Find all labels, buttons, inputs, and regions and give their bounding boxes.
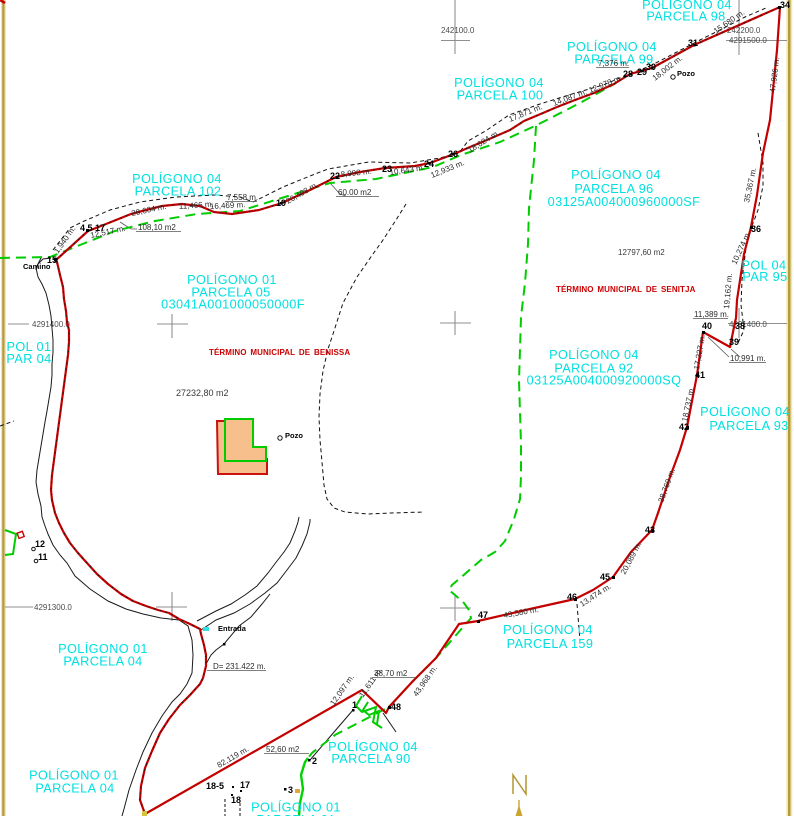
svg-text:3: 3 <box>288 785 293 795</box>
svg-text:18-5: 18-5 <box>206 781 224 791</box>
svg-text:PAR 95: PAR 95 <box>742 270 787 284</box>
svg-text:45: 45 <box>600 572 610 582</box>
svg-text:1: 1 <box>352 700 357 710</box>
svg-text:PARCELA 102: PARCELA 102 <box>135 185 222 199</box>
svg-text:12797,60 m2: 12797,60 m2 <box>618 248 665 257</box>
svg-text:38,70 m2: 38,70 m2 <box>374 669 408 678</box>
svg-text:PARCELA 90: PARCELA 90 <box>331 752 410 766</box>
svg-text:D= 231.422 m.: D= 231.422 m. <box>213 662 266 671</box>
svg-text:03041A001000050000F: 03041A001000050000F <box>161 298 305 312</box>
svg-text:39: 39 <box>729 337 739 347</box>
svg-text:POLÍGONO 04: POLÍGONO 04 <box>700 404 790 419</box>
svg-text:7,376 m.: 7,376 m. <box>598 59 629 68</box>
svg-text:4291300.0: 4291300.0 <box>34 603 72 612</box>
svg-text:4 5 17: 4 5 17 <box>80 223 105 233</box>
svg-text:Entrada: Entrada <box>218 624 247 633</box>
svg-text:PARCELA 04: PARCELA 04 <box>63 655 142 669</box>
svg-text:60.00 m2: 60.00 m2 <box>338 188 372 197</box>
svg-text:PARCELA 100: PARCELA 100 <box>457 89 544 103</box>
svg-text:34: 34 <box>780 0 790 10</box>
svg-text:TÉRMINO MUNICIPAL DE SENITJ: TÉRMINO MUNICIPAL DE SENITJA <box>556 285 696 294</box>
svg-text:12: 12 <box>35 539 45 549</box>
svg-text:11: 11 <box>38 552 48 562</box>
svg-text:PARCELA 93: PARCELA 93 <box>709 419 788 433</box>
svg-text:PARCELA 98: PARCELA 98 <box>646 10 725 24</box>
svg-text:POLÍGONO 01: POLÍGONO 01 <box>29 768 119 783</box>
svg-text:PARCELA 96: PARCELA 96 <box>574 182 653 196</box>
svg-text:11,389 m.: 11,389 m. <box>694 310 729 319</box>
svg-text:17: 17 <box>240 780 250 790</box>
svg-text:7,558 m.: 7,558 m. <box>227 193 258 202</box>
svg-text:47: 47 <box>478 610 488 620</box>
svg-text:03125A004000920000SQ: 03125A004000920000SQ <box>527 374 682 388</box>
svg-text:POLÍGONO 04: POLÍGONO 04 <box>503 622 593 637</box>
svg-text:108,10 m2: 108,10 m2 <box>138 223 176 232</box>
svg-text:10,991 m.: 10,991 m. <box>730 354 766 363</box>
svg-text:4291500.0: 4291500.0 <box>729 36 767 45</box>
svg-text:PARCELA 159: PARCELA 159 <box>507 637 594 651</box>
svg-text:38: 38 <box>735 321 745 331</box>
svg-text:27232,80 m2: 27232,80 m2 <box>176 388 229 398</box>
svg-text:22: 22 <box>330 171 340 181</box>
svg-text:POLÍGONO 04: POLÍGONO 04 <box>571 167 661 182</box>
svg-text:TÉRMINO MUNICIPAL DE BENISS: TÉRMINO MUNICIPAL DE BENISSA <box>209 348 350 357</box>
svg-text:Pozo: Pozo <box>677 69 695 78</box>
svg-text:Camino: Camino <box>23 262 51 271</box>
svg-text:40: 40 <box>702 321 712 331</box>
svg-text:2: 2 <box>312 756 317 766</box>
svg-text:03125A004000960000SF: 03125A004000960000SF <box>548 195 701 209</box>
svg-text:Pozo: Pozo <box>285 431 303 440</box>
svg-text:28: 28 <box>623 69 633 79</box>
svg-text:POLÍGONO 04: POLÍGONO 04 <box>549 347 639 362</box>
svg-text:PARCELA 04: PARCELA 04 <box>35 782 114 796</box>
svg-text:48: 48 <box>391 702 401 712</box>
svg-text:52,60 m2: 52,60 m2 <box>266 745 300 754</box>
svg-text:PAR 04: PAR 04 <box>6 352 51 366</box>
svg-text:23: 23 <box>382 164 392 174</box>
svg-text:18: 18 <box>231 795 241 805</box>
svg-text:242100.0: 242100.0 <box>441 26 475 35</box>
